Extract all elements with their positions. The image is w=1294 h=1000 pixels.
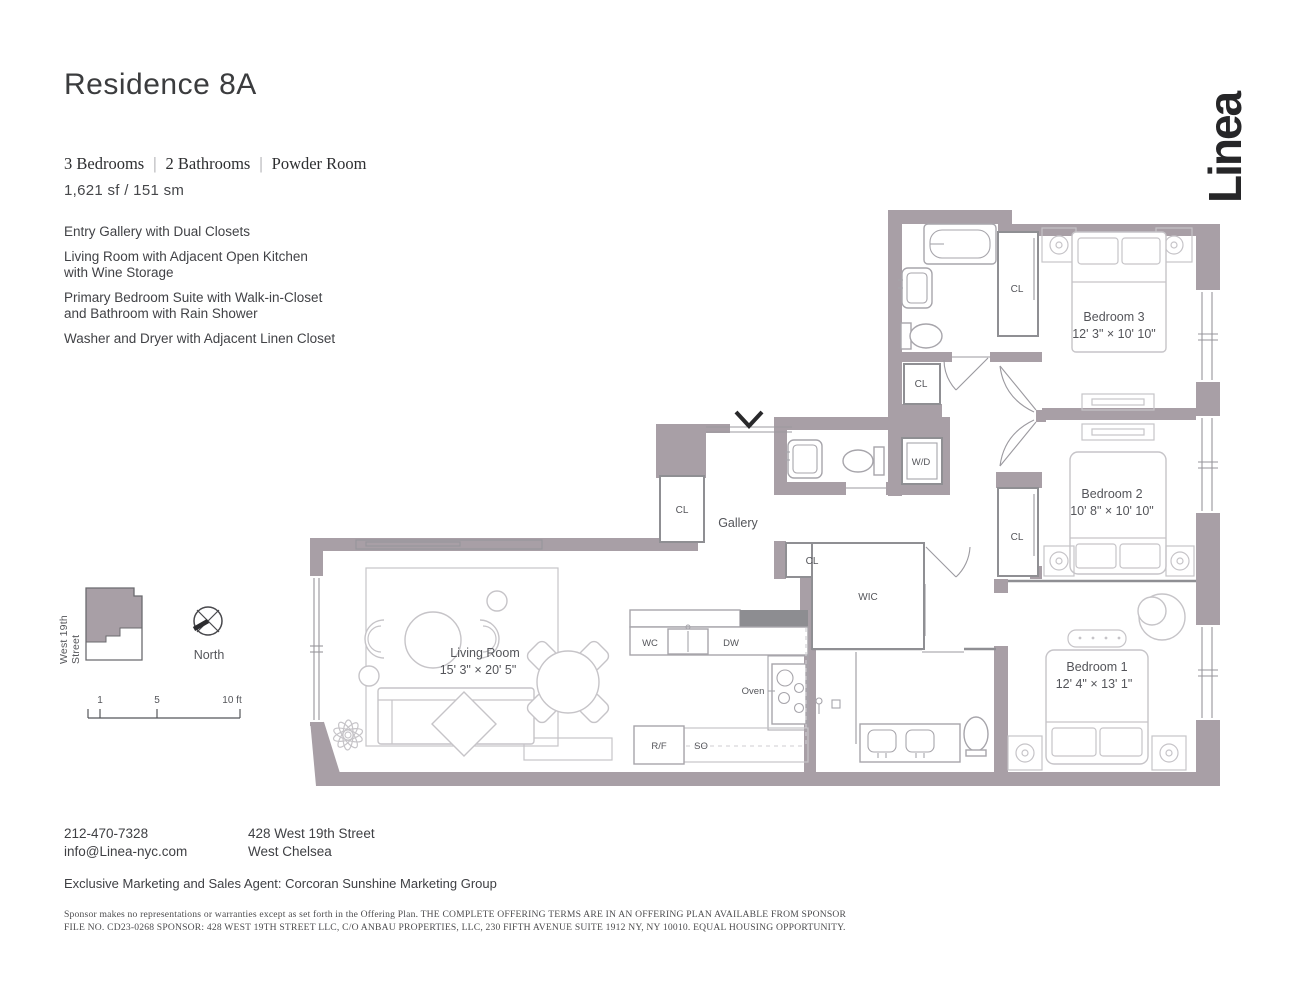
side-table-icon bbox=[487, 591, 507, 611]
dining-table-icon bbox=[525, 639, 611, 725]
floorplan-sheet: Residence 8A 3 Bedrooms|2 Bathrooms|Powd… bbox=[0, 0, 1294, 1000]
window-right-2 bbox=[1196, 416, 1220, 513]
gallery-label: Gallery bbox=[718, 516, 758, 530]
bedroom3-dims: 12' 3" × 10' 10" bbox=[1072, 327, 1156, 341]
bathtub-icon bbox=[924, 224, 996, 264]
north-compass-icon bbox=[194, 607, 222, 635]
bench-icon bbox=[1068, 630, 1126, 647]
contact-email: info@Linea-nyc.com bbox=[64, 844, 187, 859]
floorplan-svg: Bedroom 3 12' 3" × 10' 10" Bedroom 2 10'… bbox=[0, 0, 1294, 1000]
dresser-icon bbox=[1082, 394, 1154, 410]
closet-label: CL bbox=[806, 556, 819, 567]
island-counter bbox=[630, 610, 740, 627]
keyplan bbox=[86, 588, 142, 660]
address-line2: West Chelsea bbox=[248, 844, 332, 859]
living-room-dims: 15' 3" × 20' 5" bbox=[440, 663, 517, 677]
cooktop-icon bbox=[772, 664, 806, 724]
legal-disclaimer-line2: FILE NO. CD23-0268 SPONSOR: 428 WEST 19T… bbox=[64, 922, 846, 933]
scale-tick-1: 1 bbox=[97, 695, 103, 706]
nightstand-icon bbox=[1152, 736, 1186, 770]
wic-label: WIC bbox=[858, 592, 877, 603]
closet-label: CL bbox=[915, 379, 928, 390]
window-right-3 bbox=[1196, 625, 1220, 720]
fridge-label: R/F bbox=[651, 741, 667, 752]
legal-disclaimer-line1: Sponsor makes no representations or warr… bbox=[64, 909, 846, 920]
window-right-1 bbox=[1196, 290, 1220, 382]
bedroom2-label: Bedroom 2 bbox=[1081, 487, 1142, 501]
armchair-icon bbox=[365, 620, 384, 658]
toilet-icon bbox=[843, 447, 884, 475]
oven-label: Oven bbox=[742, 686, 765, 697]
speed-oven-label: SO bbox=[694, 741, 708, 752]
closet-label: CL bbox=[676, 505, 689, 516]
scale-tick-10: 10 ft bbox=[222, 695, 242, 706]
powder-room-fixtures bbox=[785, 440, 884, 478]
lounge-chair-icon bbox=[1138, 594, 1185, 640]
dishwasher-label: DW bbox=[723, 638, 739, 649]
sink-icon bbox=[785, 440, 822, 478]
dresser-icon bbox=[1082, 424, 1154, 440]
contact-phone: 212-470-7328 bbox=[64, 826, 148, 841]
toilet-icon bbox=[964, 717, 988, 756]
double-vanity-icon bbox=[860, 724, 960, 762]
toilet-icon bbox=[901, 323, 942, 349]
plant-icon bbox=[332, 720, 364, 750]
closet-label: CL bbox=[1011, 532, 1024, 543]
sink-icon bbox=[898, 268, 932, 308]
side-table-icon bbox=[359, 666, 379, 686]
island-bar bbox=[740, 610, 808, 627]
living-room-furniture bbox=[332, 568, 611, 756]
north-label: North bbox=[194, 648, 225, 662]
wine-cooler-label: WC bbox=[642, 638, 658, 649]
entry-arrow-icon bbox=[736, 412, 762, 426]
nightstand-icon bbox=[1008, 736, 1042, 770]
window-left bbox=[310, 576, 323, 722]
scale-tick-5: 5 bbox=[154, 695, 160, 706]
bedroom2-dims: 10' 8" × 10' 10" bbox=[1070, 504, 1154, 518]
bedroom1-dims: 12' 4" × 13' 1" bbox=[1056, 677, 1133, 691]
console-cabinet bbox=[524, 738, 612, 760]
shower-control-icon bbox=[832, 700, 840, 708]
living-room-label: Living Room bbox=[450, 646, 519, 660]
primary-bath-fixtures bbox=[816, 652, 988, 762]
kitchen-sink-icon bbox=[668, 625, 708, 654]
bedroom1-label: Bedroom 1 bbox=[1066, 660, 1127, 674]
address-line1: 428 West 19th Street bbox=[248, 826, 375, 841]
closet-label: CL bbox=[1011, 284, 1024, 295]
washer-dryer-label: W/D bbox=[912, 457, 931, 468]
bathroom-top-fixtures bbox=[898, 224, 996, 349]
shower-head-icon bbox=[816, 698, 822, 714]
scale-bar: 1 5 10 ft bbox=[88, 695, 242, 718]
bedroom3-label: Bedroom 3 bbox=[1083, 310, 1144, 324]
sales-agent-line: Exclusive Marketing and Sales Agent: Cor… bbox=[64, 876, 497, 891]
